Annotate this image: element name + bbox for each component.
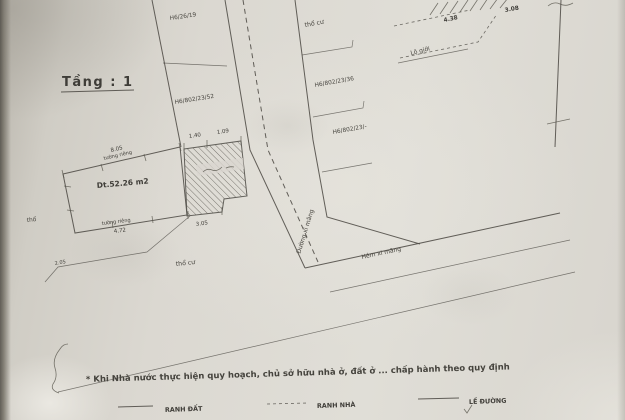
legend-sample-road-edge (418, 398, 459, 399)
dim-hatch-top-1: 1.40 (188, 132, 201, 140)
dim-top-right-1: 4.38 (443, 15, 458, 24)
floor-label: Tầng : 1 (62, 75, 134, 90)
scanned-survey-photo: Tầng : 1 Dt.52.26 m2 H6/26/19 H6/802/23/… (0, 0, 625, 420)
parcel-code-left: H6/802/23/52 (174, 94, 214, 106)
vertical-alley-lines (225, 0, 420, 268)
dimension-labels: 8.05 tường riêng tường riêng 4.72 1.40 1… (54, 6, 519, 267)
hatched-house-footprint (184, 136, 247, 219)
photo-left-edge-shadow (0, 0, 11, 420)
floor-underline (61, 90, 134, 92)
photo-right-edge-shadow (617, 0, 625, 420)
parcel-area-label: Dt.52.26 m2 (96, 176, 149, 190)
dim-bottom-wall-len: 4.72 (114, 228, 127, 235)
right-parcel-dividers (302, 40, 372, 172)
hand-bracket (52, 344, 68, 393)
parcel-type-left-edge: thổ (26, 216, 37, 224)
parcel-code-right-2: H6/802/23/- (332, 124, 367, 136)
survey-drawing: Tầng : 1 Dt.52.26 m2 H6/26/19 H6/802/23/… (0, 0, 625, 420)
parcel-type-bottom: thổ cư (175, 257, 196, 268)
left-parcel-boundaries (152, 0, 227, 147)
legend-sample-house-boundary (267, 403, 308, 404)
dim-bottom-wall-type: tường riêng (101, 217, 131, 227)
road-boundary-label: Lộ giới (410, 45, 431, 57)
legend-sample-land-boundary (118, 406, 153, 407)
road-boundary-marks (394, 0, 573, 147)
floor-title: Tầng : 1 (61, 75, 134, 92)
road-label-vertical-alley: Đường xi măng (296, 208, 316, 254)
dim-hatch-bottom: 3.05 (195, 220, 208, 228)
legend-label-house-boundary: RANH NHÀ (317, 400, 356, 410)
dim-top-right-2: 3.08 (504, 6, 519, 14)
road-label-horizontal-alley: Hẻm xi măng (361, 246, 402, 261)
legend-label-land-boundary: RANH ĐẤT (165, 403, 203, 414)
planning-note: * Khi Nhà nước thực hiện quy hoạch, chủ … (86, 361, 510, 384)
parcel-code-right-1: H6/802/23/36 (314, 76, 354, 89)
parcel-code-top-left: H6/26/19 (169, 12, 197, 22)
legend-label-road-edge: LỀ ĐƯỜNG (469, 395, 507, 406)
legend: RANH ĐẤT RANH NHÀ LỀ ĐƯỜNG (118, 395, 507, 414)
dim-hatch-top-2: 1.09 (216, 128, 229, 136)
legend-check-mark (464, 405, 472, 413)
parcel-type-right-top: thổ cư (304, 17, 326, 29)
